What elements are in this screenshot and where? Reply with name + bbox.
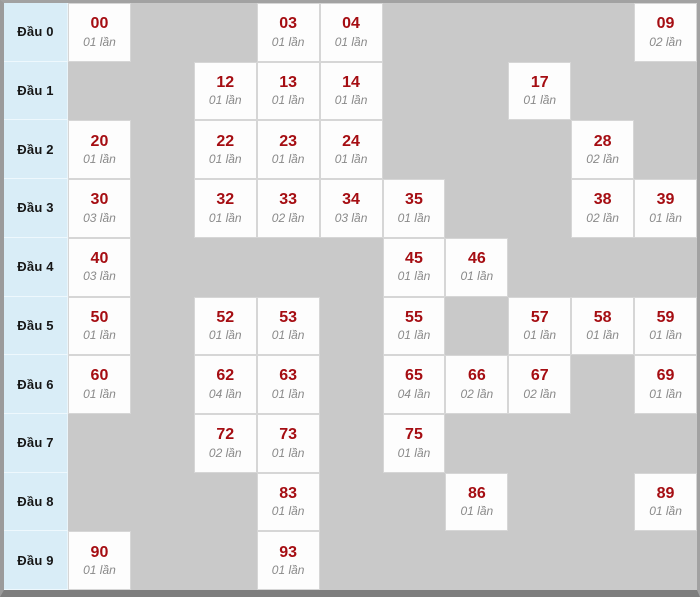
cell-number: 69 (657, 367, 675, 385)
empty-cell (320, 473, 383, 532)
row-label-dau-7: Đầu 7 (4, 414, 68, 473)
cell-count: 01 lần (398, 212, 431, 226)
empty-cell (571, 3, 634, 62)
empty-cell (131, 62, 194, 121)
cell-35: 3501 lần (383, 179, 446, 238)
cell-50: 5001 lần (68, 297, 131, 356)
empty-cell (68, 414, 131, 473)
cell-count: 01 lần (272, 153, 305, 167)
cell-number: 75 (405, 426, 423, 444)
cell-count: 02 lần (209, 447, 242, 461)
empty-cell (131, 473, 194, 532)
cell-count: 01 lần (649, 329, 682, 343)
frequency-board: Đầu 00001 lần0301 lần0401 lần0902 lầnĐầu… (0, 0, 700, 597)
empty-cell (445, 3, 508, 62)
cell-count: 04 lần (398, 388, 431, 402)
empty-cell (634, 238, 697, 297)
cell-count: 01 lần (272, 447, 305, 461)
cell-number: 58 (594, 309, 612, 327)
cell-number: 90 (91, 544, 109, 562)
row-label-dau-4: Đầu 4 (4, 238, 68, 297)
cell-count: 02 lần (586, 212, 619, 226)
empty-cell (194, 238, 257, 297)
cell-04: 0401 lần (320, 3, 383, 62)
cell-count: 01 lần (335, 94, 368, 108)
empty-cell (571, 473, 634, 532)
cell-count: 01 lần (83, 564, 116, 578)
empty-cell (445, 414, 508, 473)
cell-count: 01 lần (83, 153, 116, 167)
cell-count: 01 lần (460, 505, 493, 519)
empty-cell (320, 238, 383, 297)
cell-46: 4601 lần (445, 238, 508, 297)
cell-count: 04 lần (209, 388, 242, 402)
cell-number: 35 (405, 191, 423, 209)
empty-cell (571, 238, 634, 297)
empty-cell (571, 531, 634, 590)
cell-number: 32 (216, 191, 234, 209)
cell-count: 01 lần (649, 505, 682, 519)
cell-count: 01 lần (335, 36, 368, 50)
cell-count: 01 lần (398, 447, 431, 461)
cell-55: 5501 lần (383, 297, 446, 356)
cell-number: 62 (216, 367, 234, 385)
cell-count: 01 lần (335, 153, 368, 167)
cell-52: 5201 lần (194, 297, 257, 356)
cell-count: 01 lần (272, 564, 305, 578)
cell-number: 52 (216, 309, 234, 327)
cell-number: 63 (279, 367, 297, 385)
frequency-grid: Đầu 00001 lần0301 lần0401 lần0902 lầnĐầu… (4, 3, 697, 590)
empty-cell (634, 120, 697, 179)
row-label-dau-3: Đầu 3 (4, 179, 68, 238)
cell-33: 3302 lần (257, 179, 320, 238)
empty-cell (383, 473, 446, 532)
cell-count: 02 lần (272, 212, 305, 226)
empty-cell (131, 531, 194, 590)
row-label-dau-5: Đầu 5 (4, 297, 68, 356)
cell-number: 39 (657, 191, 675, 209)
cell-count: 01 lần (83, 36, 116, 50)
cell-count: 03 lần (83, 270, 116, 284)
empty-cell (508, 531, 571, 590)
cell-count: 02 lần (523, 388, 556, 402)
cell-count: 01 lần (649, 212, 682, 226)
cell-number: 57 (531, 309, 549, 327)
empty-cell (508, 120, 571, 179)
cell-number: 03 (279, 15, 297, 33)
empty-cell (131, 179, 194, 238)
cell-73: 7301 lần (257, 414, 320, 473)
empty-cell (508, 238, 571, 297)
cell-number: 73 (279, 426, 297, 444)
row-label-dau-2: Đầu 2 (4, 120, 68, 179)
cell-number: 22 (216, 133, 234, 151)
cell-number: 53 (279, 309, 297, 327)
cell-62: 6204 lần (194, 355, 257, 414)
cell-count: 02 lần (649, 36, 682, 50)
cell-count: 01 lần (523, 329, 556, 343)
cell-number: 17 (531, 74, 549, 92)
empty-cell (445, 179, 508, 238)
cell-count: 01 lần (272, 329, 305, 343)
cell-number: 66 (468, 367, 486, 385)
cell-number: 50 (91, 309, 109, 327)
empty-cell (445, 297, 508, 356)
cell-count: 01 lần (523, 94, 556, 108)
cell-66: 6602 lần (445, 355, 508, 414)
empty-cell (131, 355, 194, 414)
cell-number: 93 (279, 544, 297, 562)
cell-number: 55 (405, 309, 423, 327)
cell-count: 01 lần (398, 329, 431, 343)
cell-40: 4003 lần (68, 238, 131, 297)
empty-cell (320, 355, 383, 414)
cell-number: 34 (342, 191, 360, 209)
cell-number: 59 (657, 309, 675, 327)
empty-cell (571, 62, 634, 121)
cell-number: 00 (91, 15, 109, 33)
cell-23: 2301 lần (257, 120, 320, 179)
cell-count: 01 lần (83, 388, 116, 402)
row-label-dau-8: Đầu 8 (4, 473, 68, 532)
cell-number: 65 (405, 367, 423, 385)
cell-count: 01 lần (460, 270, 493, 284)
cell-number: 28 (594, 133, 612, 151)
cell-57: 5701 lần (508, 297, 571, 356)
cell-number: 83 (279, 485, 297, 503)
cell-number: 72 (216, 426, 234, 444)
empty-cell (257, 238, 320, 297)
empty-cell (68, 473, 131, 532)
cell-67: 6702 lần (508, 355, 571, 414)
empty-cell (445, 120, 508, 179)
row-label-dau-0: Đầu 0 (4, 3, 68, 62)
cell-number: 04 (342, 15, 360, 33)
empty-cell (131, 297, 194, 356)
cell-number: 40 (91, 250, 109, 268)
cell-count: 01 lần (398, 270, 431, 284)
empty-cell (508, 179, 571, 238)
cell-count: 01 lần (209, 329, 242, 343)
cell-count: 01 lần (272, 94, 305, 108)
cell-count: 01 lần (586, 329, 619, 343)
cell-13: 1301 lần (257, 62, 320, 121)
cell-86: 8601 lần (445, 473, 508, 532)
empty-cell (571, 355, 634, 414)
cell-number: 12 (216, 74, 234, 92)
empty-cell (634, 531, 697, 590)
cell-75: 7501 lần (383, 414, 446, 473)
cell-03: 0301 lần (257, 3, 320, 62)
cell-28: 2802 lần (571, 120, 634, 179)
cell-32: 3201 lần (194, 179, 257, 238)
cell-38: 3802 lần (571, 179, 634, 238)
cell-39: 3901 lần (634, 179, 697, 238)
empty-cell (634, 414, 697, 473)
empty-cell (131, 120, 194, 179)
cell-number: 23 (279, 133, 297, 151)
empty-cell (131, 3, 194, 62)
cell-count: 03 lần (83, 212, 116, 226)
cell-90: 9001 lần (68, 531, 131, 590)
cell-number: 89 (657, 485, 675, 503)
cell-17: 1701 lần (508, 62, 571, 121)
cell-number: 45 (405, 250, 423, 268)
cell-24: 2401 lần (320, 120, 383, 179)
cell-number: 86 (468, 485, 486, 503)
empty-cell (194, 531, 257, 590)
cell-30: 3003 lần (68, 179, 131, 238)
cell-number: 09 (657, 15, 675, 33)
cell-number: 13 (279, 74, 297, 92)
empty-cell (508, 3, 571, 62)
cell-count: 02 lần (460, 388, 493, 402)
cell-59: 5901 lần (634, 297, 697, 356)
empty-cell (194, 473, 257, 532)
empty-cell (508, 473, 571, 532)
row-label-dau-6: Đầu 6 (4, 355, 68, 414)
cell-89: 8901 lần (634, 473, 697, 532)
cell-20: 2001 lần (68, 120, 131, 179)
cell-count: 01 lần (209, 153, 242, 167)
cell-60: 6001 lần (68, 355, 131, 414)
cell-12: 1201 lần (194, 62, 257, 121)
row-label-dau-1: Đầu 1 (4, 62, 68, 121)
cell-83: 8301 lần (257, 473, 320, 532)
empty-cell (320, 531, 383, 590)
cell-58: 5801 lần (571, 297, 634, 356)
cell-72: 7202 lần (194, 414, 257, 473)
cell-number: 14 (342, 74, 360, 92)
empty-cell (383, 62, 446, 121)
empty-cell (383, 531, 446, 590)
cell-34: 3403 lần (320, 179, 383, 238)
cell-count: 01 lần (209, 94, 242, 108)
cell-count: 01 lần (649, 388, 682, 402)
cell-69: 6901 lần (634, 355, 697, 414)
empty-cell (68, 62, 131, 121)
empty-cell (131, 414, 194, 473)
cell-count: 01 lần (209, 212, 242, 226)
cell-count: 02 lần (586, 153, 619, 167)
cell-53: 5301 lần (257, 297, 320, 356)
empty-cell (320, 414, 383, 473)
empty-cell (445, 531, 508, 590)
cell-93: 9301 lần (257, 531, 320, 590)
cell-number: 20 (91, 133, 109, 151)
cell-45: 4501 lần (383, 238, 446, 297)
empty-cell (383, 3, 446, 62)
cell-09: 0902 lần (634, 3, 697, 62)
cell-22: 2201 lần (194, 120, 257, 179)
cell-count: 01 lần (83, 329, 116, 343)
empty-cell (383, 120, 446, 179)
empty-cell (131, 238, 194, 297)
cell-number: 33 (279, 191, 297, 209)
empty-cell (445, 62, 508, 121)
cell-number: 46 (468, 250, 486, 268)
cell-63: 6301 lần (257, 355, 320, 414)
cell-14: 1401 lần (320, 62, 383, 121)
empty-cell (194, 3, 257, 62)
cell-count: 01 lần (272, 388, 305, 402)
cell-count: 03 lần (335, 212, 368, 226)
cell-number: 24 (342, 133, 360, 151)
empty-cell (634, 62, 697, 121)
cell-count: 01 lần (272, 36, 305, 50)
cell-count: 01 lần (272, 505, 305, 519)
empty-cell (320, 297, 383, 356)
empty-cell (571, 414, 634, 473)
cell-number: 67 (531, 367, 549, 385)
empty-cell (508, 414, 571, 473)
cell-number: 30 (91, 191, 109, 209)
cell-65: 6504 lần (383, 355, 446, 414)
cell-number: 38 (594, 191, 612, 209)
row-label-dau-9: Đầu 9 (4, 531, 68, 590)
cell-number: 60 (91, 367, 109, 385)
cell-00: 0001 lần (68, 3, 131, 62)
